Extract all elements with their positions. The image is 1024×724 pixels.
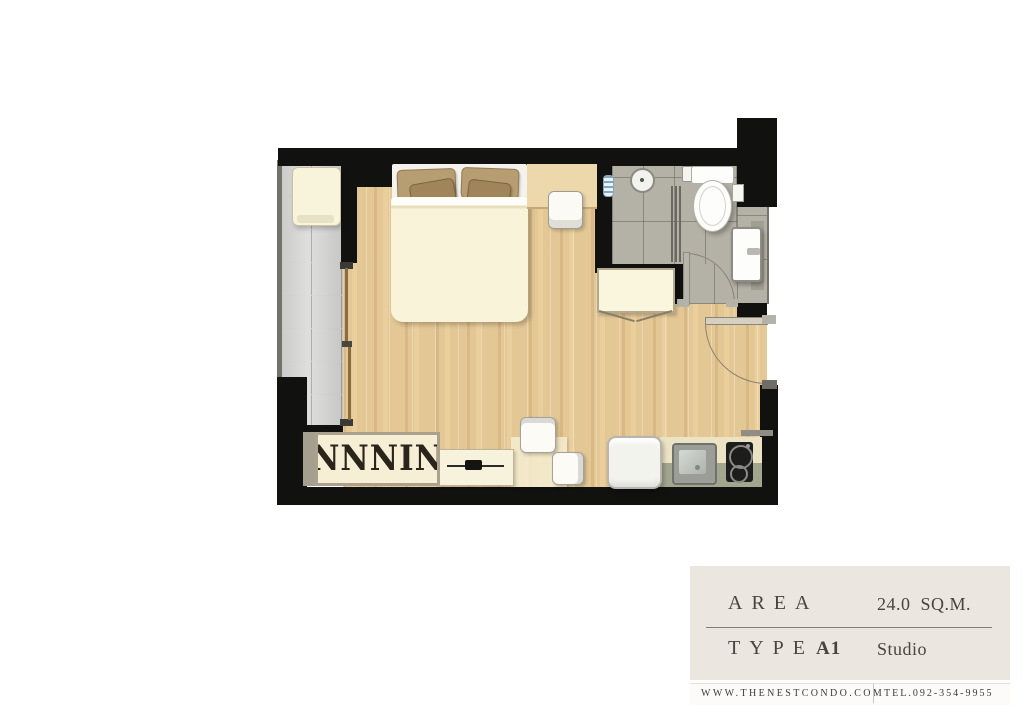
- shower-partition-line: [679, 186, 681, 262]
- washing-machine: [292, 167, 341, 226]
- kitchen-sink: [672, 443, 717, 485]
- toilet-seat-line: [699, 186, 726, 226]
- entry-door-jamb-top: [762, 315, 776, 324]
- storage-cabinet: [597, 268, 675, 313]
- basin-faucet: [747, 248, 760, 255]
- footer-phone: TEL.092-354-9955: [884, 688, 994, 699]
- balcony-door-jamb-middle: [342, 341, 352, 347]
- kitchen-sink-drain: [695, 465, 700, 470]
- floor-plan-page: NNNNINN AREA 24.0 SQ.M. TYPE A1 Studio W…: [0, 0, 1024, 724]
- wardrobe-hangers: NNNNINN: [315, 432, 440, 486]
- wall-bottom: [278, 487, 778, 505]
- shower-partition-line: [675, 186, 677, 262]
- balcony-sliding-door-panel: [348, 344, 351, 420]
- vanity-chair: [548, 191, 583, 229]
- balcony-sliding-door-panel: [345, 268, 348, 344]
- type-label: TYPE: [728, 637, 814, 660]
- desk-chair: [552, 452, 584, 485]
- wardrobe: NNNNINN: [315, 432, 440, 486]
- bathroom-door-jamb-left: [677, 299, 689, 307]
- footer-divider: [873, 684, 874, 703]
- bed-blanket: [391, 197, 528, 322]
- type-code: A1: [816, 638, 841, 660]
- balcony-door-jamb-bottom: [340, 419, 353, 426]
- wall-right: [760, 385, 778, 503]
- shower-drain-center: [640, 178, 644, 182]
- tv-stand: [465, 460, 482, 470]
- info-panel: [690, 566, 1010, 680]
- refrigerator: [607, 436, 662, 489]
- type-value: Studio: [877, 639, 927, 660]
- shower-drain: [630, 168, 655, 193]
- area-value: 24.0 SQ.M.: [877, 594, 971, 615]
- kitchen-sink-bowl: [679, 450, 706, 474]
- soap-tray: [603, 175, 614, 197]
- hob-knob: [746, 444, 750, 448]
- toilet-bowl: [693, 180, 732, 232]
- wall-balcony: [341, 166, 357, 263]
- desk-chair: [520, 417, 556, 453]
- shower-partition-line: [671, 186, 673, 262]
- entry-door-leaf: [705, 317, 768, 325]
- toilet-paper-holder: [732, 184, 744, 202]
- footer-website: WWW.THENESTCONDO.COM: [701, 688, 884, 699]
- bathroom-door-jamb-right: [726, 299, 738, 307]
- panel-divider: [706, 627, 992, 628]
- balcony-railing: [277, 160, 282, 379]
- hob-burner-small: [730, 465, 748, 483]
- area-label: AREA: [728, 592, 818, 615]
- bathroom-door-leaf: [683, 252, 690, 305]
- washing-machine-panel: [297, 215, 334, 223]
- entry-door-jamb-bottom: [762, 380, 777, 389]
- entry-threshold: [741, 430, 773, 436]
